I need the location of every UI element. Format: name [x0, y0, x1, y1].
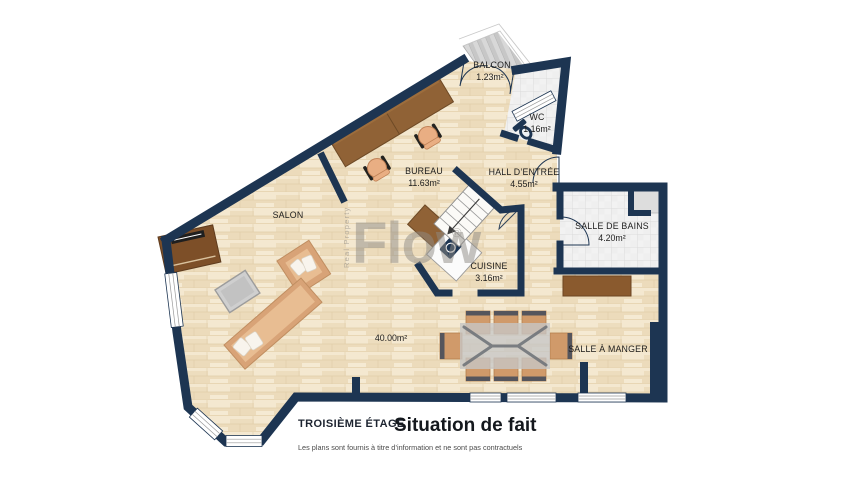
disclaimer-text: Les plans sont fournis à titre d’informa… [298, 443, 523, 452]
watermark-tagline: Real Property [342, 207, 351, 268]
watermark-registered-icon: ® [452, 225, 462, 240]
floor-plan-svg: Flow ® Real Property BALCON 1.23m² WC 1.… [0, 0, 853, 480]
floor-label: TROISIÈME ÉTAGE [298, 417, 405, 430]
room-area-salle-de-bains: 4.20m² [598, 233, 625, 243]
plan-title: Situation de fait [394, 415, 537, 436]
room-label-bureau: BUREAU [405, 166, 443, 176]
watermark: Flow ® Real Property [342, 207, 482, 276]
room-area-hall: 4.55m² [510, 179, 537, 189]
room-label-salle-a-manger: SALLE À MANGER [568, 344, 648, 354]
room-label-wc: WC [529, 112, 545, 122]
room-area-balcon: 1.23m² [476, 72, 503, 82]
dining-table [460, 323, 550, 369]
room-label-balcon: BALCON [473, 60, 510, 70]
room-label-hall: HALL D’ENTRÉE [489, 167, 560, 177]
room-area-bureau: 11.63m² [408, 178, 440, 188]
watermark-brand: Flow [352, 211, 482, 276]
room-label-salon: SALON [273, 210, 304, 220]
room-area-cuisine: 3.16m² [475, 273, 502, 283]
title-block: TROISIÈME ÉTAGE Situation de fait Les pl… [298, 415, 537, 452]
total-area-label: 40.00m² [375, 333, 407, 343]
room-area-wc: 1.16m² [523, 124, 550, 134]
floor-plan-page: Flow ® Real Property BALCON 1.23m² WC 1.… [0, 0, 853, 480]
window [470, 393, 626, 402]
sideboard [563, 276, 631, 296]
room-label-cuisine: CUISINE [470, 261, 507, 271]
window [226, 436, 262, 447]
room-label-salle-de-bains: SALLE DE BAINS [575, 221, 649, 231]
